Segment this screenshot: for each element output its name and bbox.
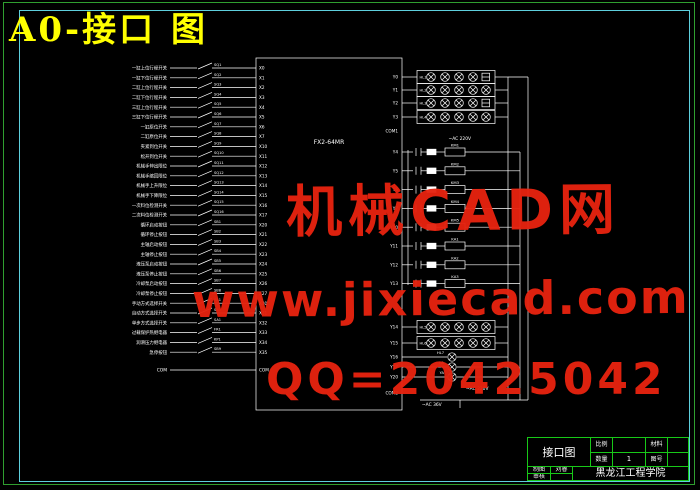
svg-text:一缸原位开关: 一缸原位开关: [141, 123, 168, 130]
svg-text:二次料位检测开关: 二次料位检测开关: [132, 212, 168, 219]
svg-text:X14: X14: [259, 183, 268, 188]
svg-text:X20: X20: [259, 222, 268, 227]
svg-text:SB9: SB9: [214, 347, 222, 351]
svg-text:HL3: HL3: [420, 101, 427, 105]
svg-text:一缸下位行程开关: 一缸下位行程开关: [132, 74, 168, 81]
svg-text:主轴停止按钮: 主轴停止按钮: [141, 251, 168, 258]
svg-text:FR1: FR1: [214, 328, 221, 332]
svg-text:SB6: SB6: [214, 269, 222, 273]
title-block-qty-value: 1: [612, 452, 646, 467]
svg-text:SQ4: SQ4: [214, 92, 222, 96]
svg-text:SQ9: SQ9: [214, 141, 222, 145]
svg-text:X17: X17: [259, 213, 268, 218]
svg-text:一缸上位行程开关: 一缸上位行程开关: [132, 65, 168, 72]
svg-text:二缸上位行程开关: 二缸上位行程开关: [132, 84, 168, 91]
svg-text:循环启动按钮: 循环启动按钮: [141, 221, 168, 228]
svg-text:X3: X3: [259, 95, 265, 100]
svg-text:SQ10: SQ10: [214, 151, 224, 155]
svg-text:润滑压力继电器: 润滑压力继电器: [136, 339, 167, 346]
svg-text:X0: X0: [259, 66, 265, 71]
svg-text:三缸下位行程开关: 三缸下位行程开关: [132, 114, 168, 121]
svg-text:SB5: SB5: [214, 259, 221, 263]
svg-text:SQ11: SQ11: [214, 161, 224, 165]
svg-text:X33: X33: [259, 330, 268, 335]
page-title: A0-接口 图: [9, 2, 208, 51]
svg-text:X12: X12: [259, 164, 268, 169]
svg-text:冷却泵启动按钮: 冷却泵启动按钮: [136, 280, 167, 287]
title-block-scale-value: [612, 437, 646, 453]
title-block-material-value: [667, 437, 689, 453]
svg-text:夹紧到位开关: 夹紧到位开关: [141, 143, 168, 150]
svg-text:HL6: HL6: [420, 341, 428, 345]
title-block-school: 黑龙江工程学院: [572, 466, 689, 481]
svg-text:X10: X10: [259, 144, 268, 149]
svg-text:松开到位开关: 松开到位开关: [141, 153, 168, 160]
svg-text:SQ14: SQ14: [214, 190, 224, 194]
watermark-url: www.jixiecad.com: [192, 270, 690, 328]
svg-text:HL4: HL4: [420, 115, 428, 119]
svg-text:Y4: Y4: [392, 150, 399, 155]
svg-text:X23: X23: [259, 252, 268, 257]
svg-text:循环停止按钮: 循环停止按钮: [141, 231, 168, 238]
svg-text:Y3: Y3: [392, 115, 399, 120]
svg-text:SQ7: SQ7: [214, 122, 221, 126]
svg-text:SQ1: SQ1: [214, 63, 221, 67]
title-block-qty-label: 数量: [590, 452, 613, 467]
svg-text:机械手缩回限位: 机械手缩回限位: [136, 172, 167, 179]
svg-text:X15: X15: [259, 193, 268, 198]
svg-text:KA2: KA2: [451, 255, 459, 260]
svg-text:X22: X22: [259, 242, 268, 247]
title-block-material-label: 材料: [645, 437, 668, 453]
svg-text:过载保护热继电器: 过载保护热继电器: [132, 329, 168, 336]
svg-text:X13: X13: [259, 173, 268, 178]
svg-text:Y12: Y12: [389, 262, 398, 267]
cad-sheet: FX2-64MRCOM1COM2一缸上位行程开关SQ1X0一缸下位行程开关SQ2…: [0, 0, 700, 490]
svg-text:X1: X1: [259, 75, 265, 80]
svg-text:手动方式选择开关: 手动方式选择开关: [132, 300, 168, 307]
svg-text:SB3: SB3: [214, 239, 221, 243]
watermark-qq: QQ=20425042: [266, 354, 667, 405]
svg-text:X21: X21: [259, 232, 268, 237]
svg-text:FX2-64MR: FX2-64MR: [314, 139, 345, 146]
svg-text:X24: X24: [259, 262, 268, 267]
svg-text:SQ2: SQ2: [214, 73, 221, 77]
svg-text:SB2: SB2: [214, 230, 221, 234]
svg-text:COM: COM: [157, 368, 168, 374]
svg-text:KM1: KM1: [451, 143, 460, 148]
output-lamp-rows-top: Y0HL1Y1HL2Y2HL3Y3HL4~AC 220V: [392, 71, 508, 143]
svg-text:~AC 220V: ~AC 220V: [449, 136, 471, 142]
svg-text:HL2: HL2: [420, 88, 427, 92]
svg-text:X16: X16: [259, 203, 268, 208]
svg-text:SB4: SB4: [214, 249, 222, 253]
title-block-checked-by: [550, 473, 573, 481]
svg-text:SQ15: SQ15: [214, 200, 224, 204]
svg-text:主轴启动按钮: 主轴启动按钮: [141, 241, 168, 248]
svg-text:Y2: Y2: [392, 101, 399, 106]
title-block-dwgno-value: [667, 452, 689, 467]
svg-text:液压泵启动按钮: 液压泵启动按钮: [136, 261, 167, 268]
svg-text:冷却泵停止按钮: 冷却泵停止按钮: [136, 290, 167, 297]
svg-text:自动方式选择开关: 自动方式选择开关: [132, 310, 168, 317]
svg-text:X2: X2: [259, 85, 265, 90]
title-block-scale-label: 比例: [590, 437, 613, 453]
svg-text:SQ3: SQ3: [214, 83, 221, 87]
svg-text:SQ13: SQ13: [214, 181, 224, 185]
svg-text:SQ16: SQ16: [214, 210, 224, 214]
svg-text:SQ6: SQ6: [214, 112, 222, 116]
title-block-checked-label: 审核: [527, 473, 551, 481]
svg-text:三缸上位行程开关: 三缸上位行程开关: [132, 104, 168, 111]
svg-text:机械手上升限位: 机械手上升限位: [136, 182, 167, 189]
svg-text:SQ12: SQ12: [214, 171, 224, 175]
svg-text:COM1: COM1: [386, 129, 399, 134]
title-block-drawing-name: 接口图: [527, 437, 591, 467]
svg-text:二缸下位行程开关: 二缸下位行程开关: [132, 94, 168, 101]
svg-text:Y1: Y1: [392, 88, 399, 93]
svg-text:KP1: KP1: [214, 337, 221, 341]
svg-text:一次料位检测开关: 一次料位检测开关: [132, 202, 168, 209]
svg-text:机械手下降限位: 机械手下降限位: [136, 192, 167, 199]
svg-text:X34: X34: [259, 340, 268, 345]
svg-text:单步方式选择开关: 单步方式选择开关: [132, 319, 168, 326]
svg-text:HL1: HL1: [420, 75, 427, 79]
title-block-dwgno-label: 图号: [645, 452, 668, 467]
svg-text:SB1: SB1: [214, 220, 221, 224]
watermark-site-name: 机械CAD网: [286, 165, 622, 249]
svg-text:X11: X11: [259, 154, 268, 159]
svg-text:机械手伸出限位: 机械手伸出限位: [136, 163, 167, 170]
svg-text:X4: X4: [259, 105, 265, 110]
svg-text:Y15: Y15: [389, 341, 398, 346]
svg-text:SQ5: SQ5: [214, 102, 221, 106]
svg-text:二缸原位开关: 二缸原位开关: [141, 133, 168, 140]
svg-text:液压泵停止按钮: 液压泵停止按钮: [136, 270, 167, 277]
svg-text:X5: X5: [259, 115, 265, 120]
svg-text:Y0: Y0: [392, 75, 399, 80]
svg-text:SQ8: SQ8: [214, 132, 222, 136]
title-block: 接口图 比例 数量 1 材料 图号 制图 刘睿 审核 黑龙江工程学院: [527, 437, 689, 481]
svg-text:X6: X6: [259, 124, 265, 129]
svg-text:急停按钮: 急停按钮: [149, 349, 167, 356]
svg-text:X7: X7: [259, 134, 265, 139]
